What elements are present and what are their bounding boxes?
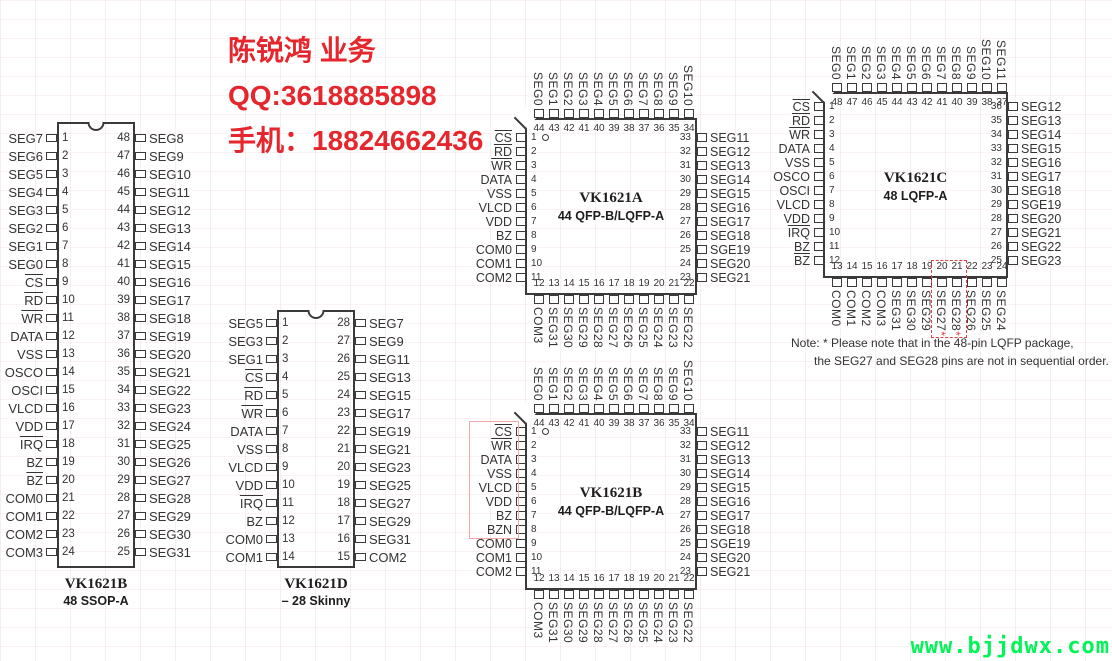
pin-box: [654, 404, 664, 413]
pin-label: DATA: [779, 142, 810, 156]
pin-number: 4: [57, 186, 83, 198]
pin-number: 45: [109, 186, 135, 198]
pin-box: [907, 278, 917, 287]
pin-box: [135, 530, 146, 538]
pin-box: [624, 109, 634, 118]
pin-label-text: SEG4: [591, 72, 605, 106]
highlight-box: [931, 260, 967, 338]
pin-label-text: WR: [21, 311, 43, 326]
pin-label: RD: [222, 388, 266, 403]
pin-box: [877, 278, 887, 287]
pin-label: SEG7: [636, 367, 650, 401]
pin-box: [1008, 242, 1018, 251]
pin-label-text: VSS: [17, 347, 43, 362]
pin-box: [135, 350, 146, 358]
pin-label: COM0: [222, 532, 266, 547]
pin-label: SEG13: [710, 159, 750, 173]
pin-number: 32: [671, 440, 691, 452]
pin-label: COM3: [2, 545, 46, 560]
pin-label-text: SEG29: [369, 514, 411, 529]
pin-label-text: SEG29: [149, 509, 191, 524]
pin-label-text: SEG5: [606, 367, 620, 401]
pin-row: DATA722SEG19: [222, 422, 410, 440]
pin-label: BZ: [222, 514, 266, 529]
pin-number: 9: [531, 538, 537, 550]
pin-label: SEG25: [636, 602, 650, 643]
pin-label-text: SEG24: [651, 602, 665, 643]
pin-box: [594, 404, 604, 413]
pin-label-text: SEG12: [710, 439, 750, 453]
pin-label: SEG5: [606, 72, 620, 106]
pin-number: 31: [109, 438, 135, 450]
pin-number: 5: [57, 204, 83, 216]
pin-box: [516, 133, 526, 142]
pin-label-text: SEG22: [681, 602, 695, 643]
pin-box: [135, 152, 146, 160]
pin-number: 37: [109, 330, 135, 342]
pin-rows: SEG7148SEG8SEG6247SEG9SEG5346SEG10SEG444…: [2, 129, 190, 561]
pin-row: VSS1336SEG20: [2, 345, 190, 363]
pin-label-text: SEG20: [710, 551, 750, 565]
pin-label: SEG8: [949, 46, 963, 80]
pin-number: 26: [982, 241, 1002, 253]
pin-box: [564, 590, 574, 599]
pin-label: SEG16: [1021, 156, 1061, 170]
pin-label-text: SEG26: [621, 602, 635, 643]
pin-number: 24: [671, 258, 691, 270]
pin-label: SEG9: [366, 334, 410, 349]
pin-box: [654, 295, 664, 304]
pin-number: 24: [671, 552, 691, 564]
pin-box: [579, 590, 589, 599]
pin-label: SEG30: [146, 527, 190, 542]
pin-label-text: COM2: [5, 527, 43, 542]
pin-label-text: SEG12: [1021, 100, 1061, 114]
pin-label-text: SEG5: [228, 316, 263, 331]
pin-label: SEG30: [904, 290, 918, 331]
pin-box: [355, 553, 366, 561]
pin-box: [832, 83, 842, 92]
pin-label-text: VSS: [237, 442, 263, 457]
pin-box: [1008, 102, 1018, 111]
pin-number: 15: [329, 551, 355, 563]
pin-number: 2: [531, 440, 537, 452]
pin-label: VLCD: [777, 198, 810, 212]
pin-number: 39: [109, 294, 135, 306]
pin-label-text: DATA: [10, 329, 43, 344]
pin-row: BZ2029SEG27: [2, 471, 190, 489]
pin-box: [907, 83, 917, 92]
pin-label: SEG4: [591, 72, 605, 106]
pin-label: SEG11: [710, 131, 749, 145]
pin-label: BZ: [794, 254, 810, 268]
pin-label-text: SEG31: [369, 532, 411, 547]
pin-number: 33: [671, 426, 691, 438]
pin-number: 24: [57, 546, 83, 558]
pin-label: SEG2: [561, 367, 575, 401]
contact-qq: QQ:3618885898: [228, 73, 483, 118]
pin-box: [266, 427, 277, 435]
pin-label: SEG24: [994, 290, 1008, 331]
pin-label-text: SEG4: [591, 367, 605, 401]
pin-number: 1: [277, 317, 303, 329]
pin-label: CS: [793, 100, 810, 114]
pin-number: 8: [531, 524, 537, 536]
pin-box: [355, 499, 366, 507]
pin-box: [46, 368, 57, 376]
pin-number: 25: [671, 538, 691, 550]
pin-label-text: WR: [789, 128, 810, 142]
pin-label: SEG11: [146, 185, 190, 200]
pin-label-text: SEG7: [369, 316, 404, 331]
pin-box: [697, 441, 707, 450]
pin-label-text: SGE19: [710, 243, 750, 257]
pin-label-text: SEG7: [636, 367, 650, 401]
pin-label-text: SEG1: [546, 72, 560, 106]
pin-number: 1: [829, 101, 835, 113]
pin-box: [609, 404, 619, 413]
pin-box: [355, 535, 366, 543]
pin-label: SEG28: [591, 602, 605, 643]
pin-label: VLCD: [222, 460, 266, 475]
pin-label: SEG27: [606, 602, 620, 643]
pin-label: VSS: [222, 442, 266, 457]
pin-label-text: SEG8: [651, 72, 665, 106]
pin-label: VDD: [222, 478, 266, 493]
pin-label-text: COM1: [225, 550, 263, 565]
pin-label: SEG21: [146, 365, 190, 380]
pin-label: SEG17: [710, 509, 750, 523]
pin-label-text: SEG22: [1021, 240, 1061, 254]
pin-number: 15: [57, 384, 83, 396]
pin-label-text: SEG8: [149, 131, 184, 146]
pin-number: 16: [57, 402, 83, 414]
pin-label-text: SEG3: [228, 334, 263, 349]
pin-label-text: SEG27: [149, 473, 191, 488]
contact-name: 陈锐鸿 业务: [228, 28, 483, 73]
pin-label: WR: [789, 128, 810, 142]
pin-label-text: SEG6: [621, 367, 635, 401]
pin-number: 18: [329, 497, 355, 509]
pin-box: [594, 590, 604, 599]
pin-box: [516, 259, 526, 268]
pin-box: [516, 147, 526, 156]
pin-label-text: SEG30: [149, 527, 191, 542]
pin-label: SEG17: [710, 215, 750, 229]
pin-label-text: SEG21: [710, 271, 750, 285]
chip-vk1621b-ssop48: SEG7148SEG8SEG6247SEG9SEG5346SEG10SEG444…: [2, 122, 190, 616]
pin-number: 3: [829, 129, 835, 141]
pin-label-text: COM3: [531, 602, 545, 639]
pin-label-text: SEG30: [561, 307, 575, 348]
pin-box: [135, 512, 146, 520]
pin-number: 33: [671, 132, 691, 144]
pin-box: [135, 224, 146, 232]
pin-label: SEG26: [621, 602, 635, 643]
pin-number: 8: [277, 443, 303, 455]
pin-row: BZ1217SEG29: [222, 512, 410, 530]
pin-number: 35: [109, 366, 135, 378]
pin-label: SEG15: [1021, 142, 1061, 156]
pin-box: [609, 109, 619, 118]
pin-label: SEG26: [621, 307, 635, 348]
pin-box: [46, 206, 57, 214]
pin-box: [266, 553, 277, 561]
pin-label-text: SEG19: [369, 424, 411, 439]
pin-box: [135, 242, 146, 250]
pin-box: [516, 273, 526, 282]
pin-number: 30: [671, 468, 691, 480]
pin-box: [135, 206, 146, 214]
pin-row: COM22326SEG30: [2, 525, 190, 543]
pin-label: SEG13: [146, 221, 190, 236]
pin-box: [46, 404, 57, 412]
pin-row: SEG3227SEG9: [222, 332, 410, 350]
pin-box: [355, 463, 366, 471]
pin-box: [982, 278, 992, 287]
pin1-indicator: [542, 428, 549, 435]
pin-number: 46: [109, 168, 135, 180]
pin-label-text: SEG1: [844, 46, 858, 80]
pin-box: [135, 548, 146, 556]
pin-box: [135, 134, 146, 142]
pin-label: VSS: [2, 347, 46, 362]
pin-number: 38: [109, 312, 135, 324]
pin-label-text: SEG27: [369, 496, 411, 511]
pin-label-text: WR: [491, 159, 512, 173]
pin-label-text: SEG23: [369, 460, 411, 475]
pin-label: VSS: [487, 187, 512, 201]
pin-label-text: SEG11: [149, 185, 190, 200]
pin-number: 42: [109, 240, 135, 252]
pin-label-text: SEG22: [149, 383, 191, 398]
pin-label-text: DATA: [230, 424, 263, 439]
pin-box: [697, 511, 707, 520]
pin-label-text: VLCD: [479, 201, 512, 215]
pin-box: [46, 386, 57, 394]
pin-label-text: SEG20: [710, 257, 750, 271]
pin-label: SEG17: [366, 406, 410, 421]
pin-box: [814, 214, 824, 223]
pin-number: 3: [531, 454, 537, 466]
pin-number: 31: [671, 454, 691, 466]
pin-label: SEG21: [710, 271, 750, 285]
pin-number: 35: [982, 115, 1002, 127]
pin-number: 6: [277, 407, 303, 419]
pin-label-text: VSS: [785, 156, 810, 170]
pin-label: SEG15: [366, 388, 410, 403]
pin-box: [697, 427, 707, 436]
pin-box: [46, 422, 57, 430]
pin-number: 34: [109, 384, 135, 396]
pin-label-text: SEG31: [546, 307, 560, 348]
pin-label: SEG19: [146, 329, 190, 344]
pin-label-text: VLCD: [777, 198, 810, 212]
pin-label-text: VDD: [784, 212, 810, 226]
pin-label: SEG18: [146, 311, 190, 326]
pin-label-text: SEG14: [149, 239, 191, 254]
pin-label: SEG30: [561, 307, 575, 348]
pin-box: [46, 476, 57, 484]
pin-label: SEG10: [146, 167, 190, 182]
pin-label: SEG5: [606, 367, 620, 401]
pin-label-text: SEG11: [710, 425, 749, 439]
highlight-box: [469, 421, 519, 539]
pin-number: 23: [57, 528, 83, 540]
pin-label-text: SEG7: [636, 72, 650, 106]
pin-label-text: SEG18: [710, 229, 750, 243]
pin-box: [697, 497, 707, 506]
datasheet-page: 陈锐鸿 业务 QQ:3618885898 手机：18824662436 SEG7…: [0, 0, 1112, 661]
pin-label: IRQ: [222, 496, 266, 511]
pin-label: SEG21: [366, 442, 410, 457]
pin-label-text: SEG27: [606, 602, 620, 643]
pin-label: SEG20: [146, 347, 190, 362]
pin-number: 17: [57, 420, 83, 432]
pin-number: 26: [671, 230, 691, 242]
pin-number: 25: [671, 244, 691, 256]
pin-row: CS940SEG16: [2, 273, 190, 291]
pin-row: RD524SEG15: [222, 386, 410, 404]
pin-label-text: RD: [792, 114, 810, 128]
pin-box: [516, 231, 526, 240]
pin-label: SEG25: [636, 307, 650, 348]
pin-number: 27: [982, 227, 1002, 239]
pin-label: SEG0: [531, 72, 545, 106]
pin-label: SEG4: [2, 185, 46, 200]
pin-label-text: SEG31: [546, 602, 560, 643]
chip-subtitle: 48 LQFP-A: [825, 188, 1006, 204]
pin-number: 1: [57, 132, 83, 144]
pin-label: SEG21: [710, 565, 750, 579]
pin-label-text: SEG6: [8, 149, 43, 164]
pin-number: 43: [109, 222, 135, 234]
pin-number: 11: [531, 566, 541, 578]
pin-box: [549, 590, 559, 599]
pin-number: 32: [671, 146, 691, 158]
pin-label: COM0: [829, 290, 843, 327]
pin-box: [862, 83, 872, 92]
pin-label-text: SEG4: [8, 185, 43, 200]
pin-label-text: SEG25: [979, 290, 993, 331]
pin-label: SEG20: [710, 257, 750, 271]
pin-label: SEG7: [934, 46, 948, 80]
pin-label-text: SEG20: [1021, 212, 1061, 226]
pin-label: SEG31: [889, 290, 903, 331]
pin-box: [355, 445, 366, 453]
pin-label: SEG1: [222, 352, 266, 367]
contact-phone: 手机：18824662436: [228, 118, 483, 163]
pin-label-text: RD: [244, 388, 263, 403]
pin-row: VLCD1633SEG23: [2, 399, 190, 417]
pin-box: [355, 319, 366, 327]
pin-number: 21: [329, 443, 355, 455]
pin-label-text: COM0: [476, 537, 512, 551]
pin-box: [355, 373, 366, 381]
pin-number: 27: [329, 335, 355, 347]
pin-label: SEG28: [146, 491, 190, 506]
pin-label-text: VSS: [487, 187, 512, 201]
chip-title: VK1621A: [527, 190, 695, 207]
pin-number: 16: [329, 533, 355, 545]
pin-label-text: SEG23: [666, 602, 680, 643]
pin-label: SEG3: [2, 203, 46, 218]
pin-label-text: SEG11: [994, 40, 1008, 80]
pin-label: SEG29: [576, 307, 590, 348]
pin-label: SEG9: [666, 367, 680, 401]
pin-label-text: BZ: [496, 229, 512, 243]
chip-subtitle: – 28 Skinny: [222, 593, 410, 609]
pin-label-text: SEG0: [531, 72, 545, 106]
pin-number: 34: [982, 129, 1002, 141]
pin-box: [697, 259, 707, 268]
pin-label: SEG25: [366, 478, 410, 493]
website-watermark: www.bjjdwx.com: [911, 634, 1110, 659]
pin-label-text: SEG29: [576, 602, 590, 643]
pin-number: 36: [109, 348, 135, 360]
pin-label-text: VDD: [236, 478, 263, 493]
pin-box: [654, 109, 664, 118]
pin-label: VDD: [784, 212, 810, 226]
pin-box: [639, 404, 649, 413]
pin-number: 1: [531, 426, 537, 438]
pin-label: SEG15: [146, 257, 190, 272]
pin-box: [46, 512, 57, 520]
pin-label: SEG22: [146, 383, 190, 398]
pin-label: SEG30: [561, 602, 575, 643]
pin-box: [639, 590, 649, 599]
pin-label: SEG1: [844, 46, 858, 80]
pin-number: 7: [57, 240, 83, 252]
pin-number: 9: [829, 213, 835, 225]
pin-label-text: SEG7: [8, 131, 43, 146]
pin-label-text: CS: [25, 275, 43, 290]
pin-number: 3: [531, 160, 537, 172]
pin-label-text: SEG31: [149, 545, 191, 560]
pin-row: OSCO1435SEG21: [2, 363, 190, 381]
pin-label-text: SEG9: [666, 367, 680, 401]
pin1-indicator: [542, 134, 549, 141]
pin-label-text: CS: [495, 131, 512, 145]
pin-label: SEG2: [859, 46, 873, 80]
pin-label: SEG1: [546, 367, 560, 401]
pin-label: SEG23: [366, 460, 410, 475]
pin-label-text: OSCI: [11, 383, 43, 398]
pin-label-text: SEG15: [369, 388, 411, 403]
pin-label: COM1: [844, 290, 858, 327]
pin-box: [135, 278, 146, 286]
pin-box: [832, 278, 842, 287]
pin-label-text: SEG5: [8, 167, 43, 182]
pin-number: 2: [531, 146, 537, 158]
pin-label-text: SEG15: [1021, 142, 1061, 156]
pin-number: 11: [829, 241, 839, 253]
pin-label-text: CS: [793, 100, 810, 114]
pin-label: COM0: [476, 243, 512, 257]
pin-box: [46, 224, 57, 232]
pin-box: [697, 245, 707, 254]
pin-box: [266, 517, 277, 525]
pin-label-text: COM2: [476, 565, 512, 579]
pin-label: DATA: [481, 173, 512, 187]
pin-label: CS: [495, 131, 512, 145]
pin-number: 26: [671, 524, 691, 536]
pin-label-text: COM0: [476, 243, 512, 257]
pin-label: IRQ: [2, 437, 46, 452]
pin-label-text: SEG10: [979, 39, 993, 80]
pin-label: COM3: [531, 307, 545, 344]
pin-label-text: COM0: [829, 290, 843, 327]
